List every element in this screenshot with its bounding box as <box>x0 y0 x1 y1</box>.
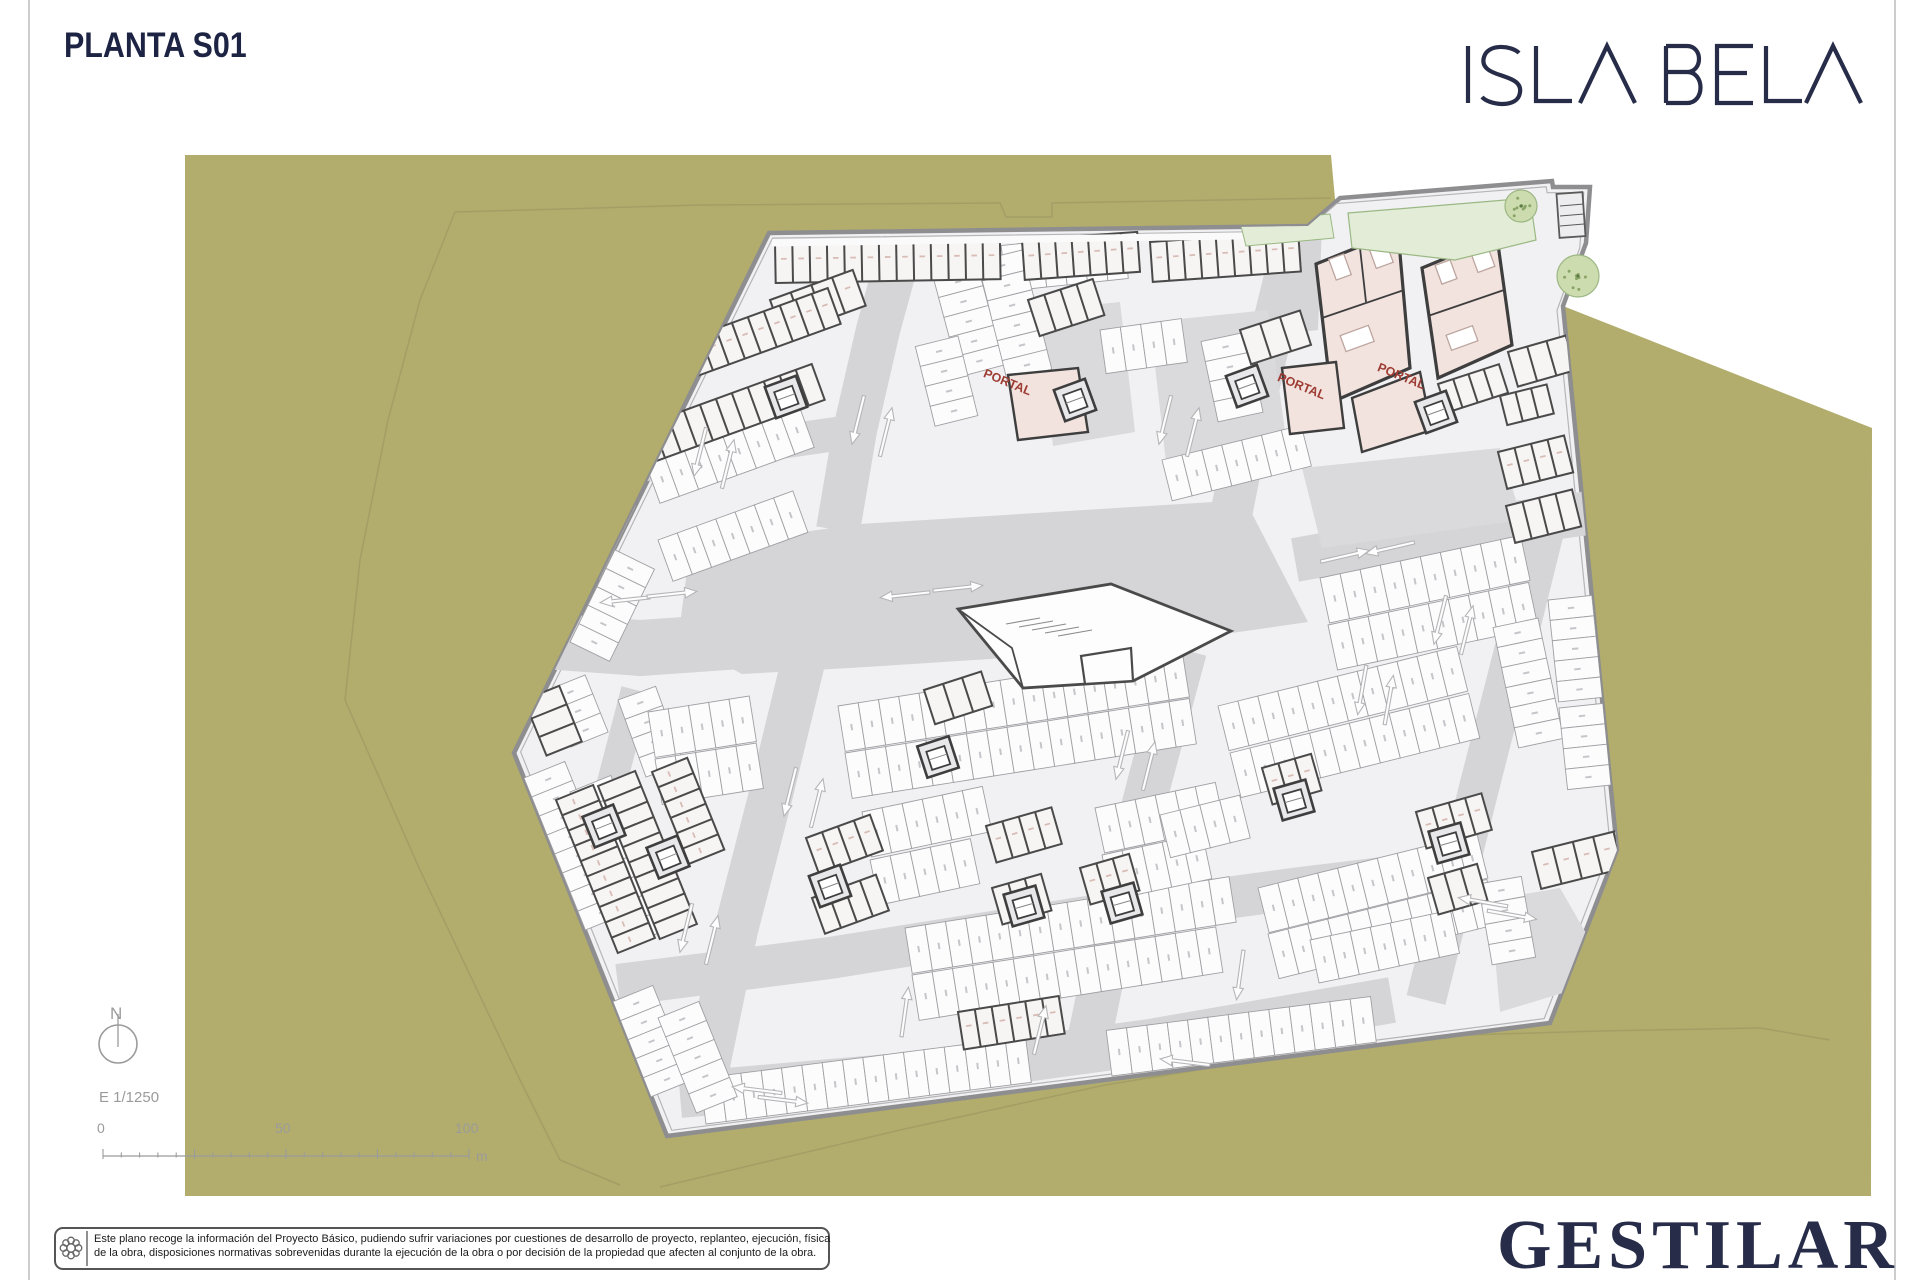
svg-text:m: m <box>476 1148 488 1164</box>
svg-text:50: 50 <box>275 1120 291 1136</box>
svg-text:E 1/1250: E 1/1250 <box>99 1089 159 1106</box>
svg-text:0: 0 <box>97 1120 105 1136</box>
svg-text:100: 100 <box>455 1120 479 1136</box>
svg-text:N: N <box>110 1004 122 1023</box>
